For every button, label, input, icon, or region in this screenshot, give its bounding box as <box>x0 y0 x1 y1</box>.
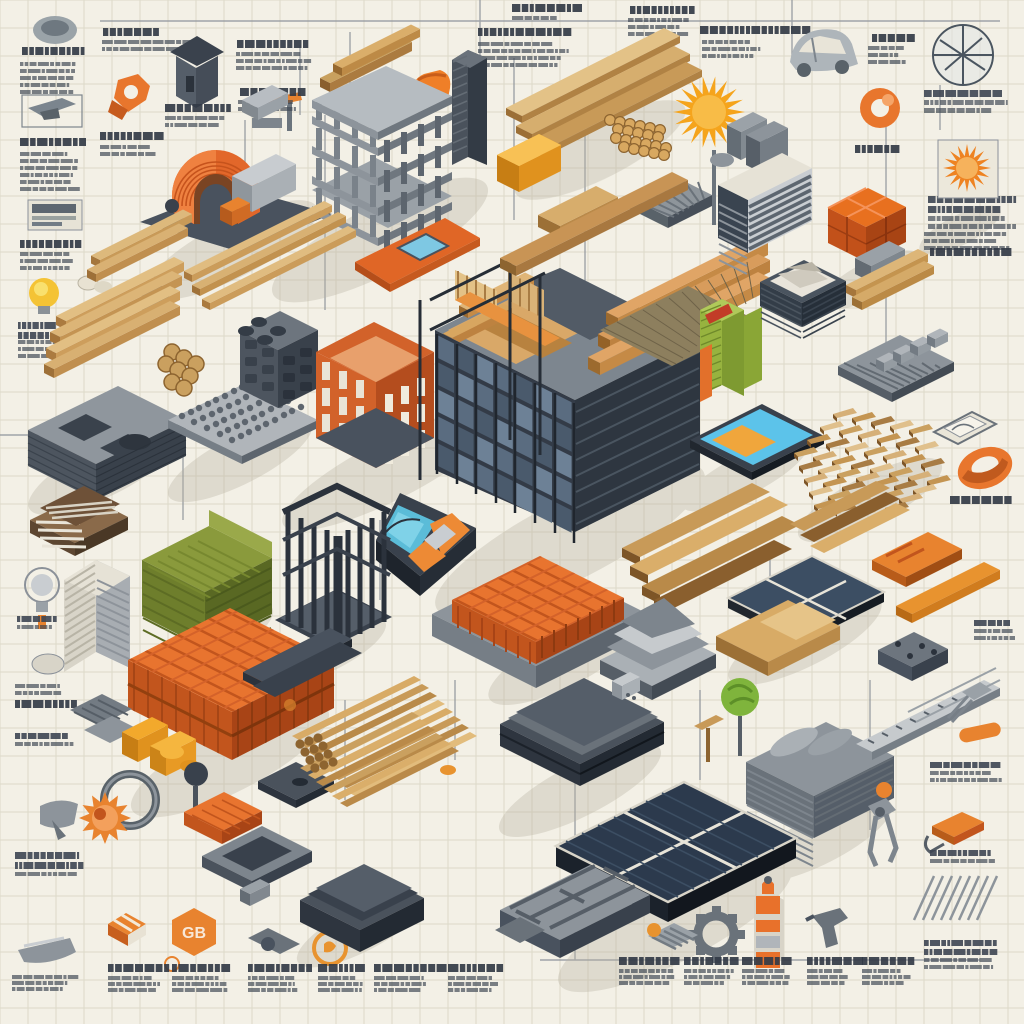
svg-text:GB: GB <box>182 925 206 942</box>
